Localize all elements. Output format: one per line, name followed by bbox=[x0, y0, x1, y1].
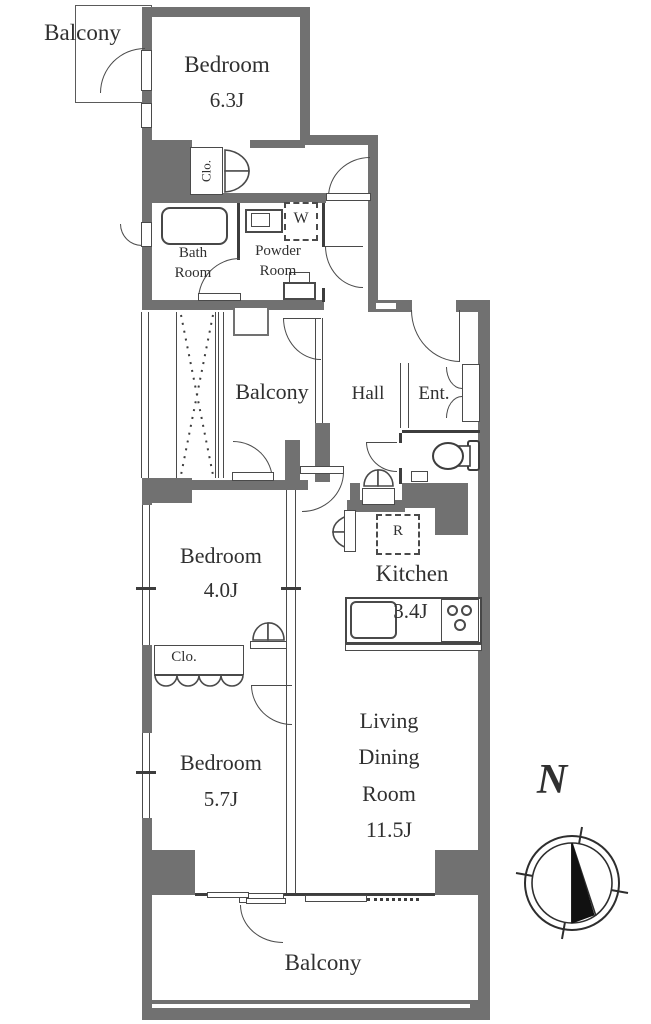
folding-door-icon bbox=[362, 468, 395, 488]
wall bbox=[145, 7, 310, 17]
wall bbox=[300, 135, 378, 145]
powder-line1: Powder bbox=[255, 243, 301, 259]
burner-icon bbox=[461, 605, 472, 616]
door-leaf bbox=[232, 472, 274, 481]
entrance-label: Ent. bbox=[404, 383, 464, 405]
living-size: 11.5J bbox=[366, 817, 412, 842]
paper-holder bbox=[411, 471, 428, 482]
door-track bbox=[344, 510, 356, 552]
bathtub bbox=[161, 207, 228, 245]
balcony-rail bbox=[141, 312, 149, 478]
bedroom2-size: 4.0J bbox=[155, 578, 287, 602]
window bbox=[141, 222, 152, 247]
partition bbox=[286, 636, 296, 893]
powder-sink-bowl bbox=[251, 213, 270, 227]
partition-line bbox=[322, 203, 325, 247]
casement-window-arc bbox=[120, 224, 142, 246]
storage-box bbox=[362, 488, 395, 505]
balcony-inner-label: Balcony bbox=[222, 379, 322, 404]
bath-label: Bath Room bbox=[152, 243, 234, 284]
wall bbox=[250, 140, 305, 148]
washer-label: W bbox=[284, 210, 318, 228]
bedroom3-size: 5.7J bbox=[155, 787, 287, 811]
window bbox=[142, 733, 150, 818]
hall-label: Hall bbox=[340, 383, 396, 405]
closet1-label: Clo. bbox=[184, 156, 230, 187]
door-leaf bbox=[326, 193, 371, 201]
door-arc bbox=[251, 685, 292, 725]
sliding-window-dashed bbox=[367, 898, 419, 901]
living-line3: Room bbox=[362, 781, 416, 806]
partition-line bbox=[402, 430, 480, 433]
balcony-bottom-label: Balcony bbox=[258, 950, 388, 976]
wall bbox=[142, 645, 152, 733]
partition-line bbox=[399, 468, 402, 484]
living-line1: Living bbox=[360, 708, 419, 733]
bath-line1: Bath bbox=[179, 245, 207, 261]
door-arc bbox=[328, 157, 370, 197]
sliding-door bbox=[207, 892, 249, 898]
wall bbox=[142, 818, 152, 1020]
mullion-tick bbox=[136, 771, 156, 774]
burner-icon bbox=[447, 605, 458, 616]
hatch-panel bbox=[176, 312, 216, 478]
powder-label: Powder Room bbox=[237, 241, 319, 282]
bath-line2: Room bbox=[175, 265, 212, 281]
wall bbox=[435, 850, 478, 895]
balcony-top-label: Balcony bbox=[25, 20, 140, 46]
living-line2: Dining bbox=[358, 744, 419, 769]
floor-plan: Clo. Balcony Bedroom 6.3J Bath Room Powd… bbox=[0, 0, 651, 1024]
partition-line bbox=[322, 288, 325, 302]
window bbox=[141, 103, 152, 128]
compass-icon bbox=[512, 818, 636, 950]
closet1-box: Clo. bbox=[190, 147, 223, 195]
window bbox=[142, 505, 150, 645]
counter-lip bbox=[345, 644, 482, 651]
folding-door-icon bbox=[251, 621, 286, 642]
shoe-cabinet bbox=[462, 364, 480, 422]
bedroom1-size: 6.3J bbox=[163, 88, 291, 112]
wall bbox=[300, 7, 310, 140]
compass-north-label: N bbox=[512, 756, 592, 804]
door-leaf bbox=[198, 293, 241, 301]
wall bbox=[285, 440, 300, 490]
door-leaf bbox=[300, 466, 344, 474]
burner-icon bbox=[454, 619, 466, 631]
kitchen-label: Kitchen bbox=[352, 561, 472, 587]
bedroom3-label: Bedroom bbox=[155, 750, 287, 775]
sliding-window bbox=[305, 895, 367, 902]
accordion-door-icon bbox=[153, 673, 244, 698]
door-arc bbox=[283, 318, 321, 360]
balcony-edge-line bbox=[152, 1004, 470, 1008]
washlet-step bbox=[283, 282, 316, 300]
closet2-label: Clo. bbox=[156, 649, 212, 666]
mullion-tick bbox=[136, 587, 156, 590]
hatch-x-icon bbox=[177, 312, 217, 478]
living-label: Living Dining Room 11.5J bbox=[330, 703, 448, 848]
bedroom1-label: Bedroom bbox=[163, 52, 291, 78]
bedroom2-label: Bedroom bbox=[155, 543, 287, 568]
door-arc bbox=[302, 472, 344, 512]
meter-box bbox=[376, 303, 396, 309]
window bbox=[286, 552, 296, 636]
entrance-door-arc bbox=[411, 310, 460, 362]
wall bbox=[435, 508, 468, 535]
door-track bbox=[250, 641, 287, 649]
wall bbox=[402, 483, 468, 508]
kitchen-size: 3.4J bbox=[378, 599, 443, 623]
wall bbox=[350, 483, 360, 503]
fridge-label: R bbox=[376, 523, 420, 540]
wall bbox=[142, 850, 195, 895]
toilet-icon bbox=[430, 439, 482, 473]
wall bbox=[142, 7, 152, 50]
door-arc bbox=[325, 246, 363, 288]
partition bbox=[286, 490, 296, 552]
wall bbox=[142, 1000, 490, 1020]
balcony-door-arc bbox=[240, 905, 283, 943]
service-box bbox=[233, 308, 269, 336]
powder-line2: Room bbox=[260, 263, 297, 279]
wall bbox=[142, 490, 152, 505]
sliding-door bbox=[246, 898, 286, 904]
partition-line bbox=[399, 433, 402, 443]
